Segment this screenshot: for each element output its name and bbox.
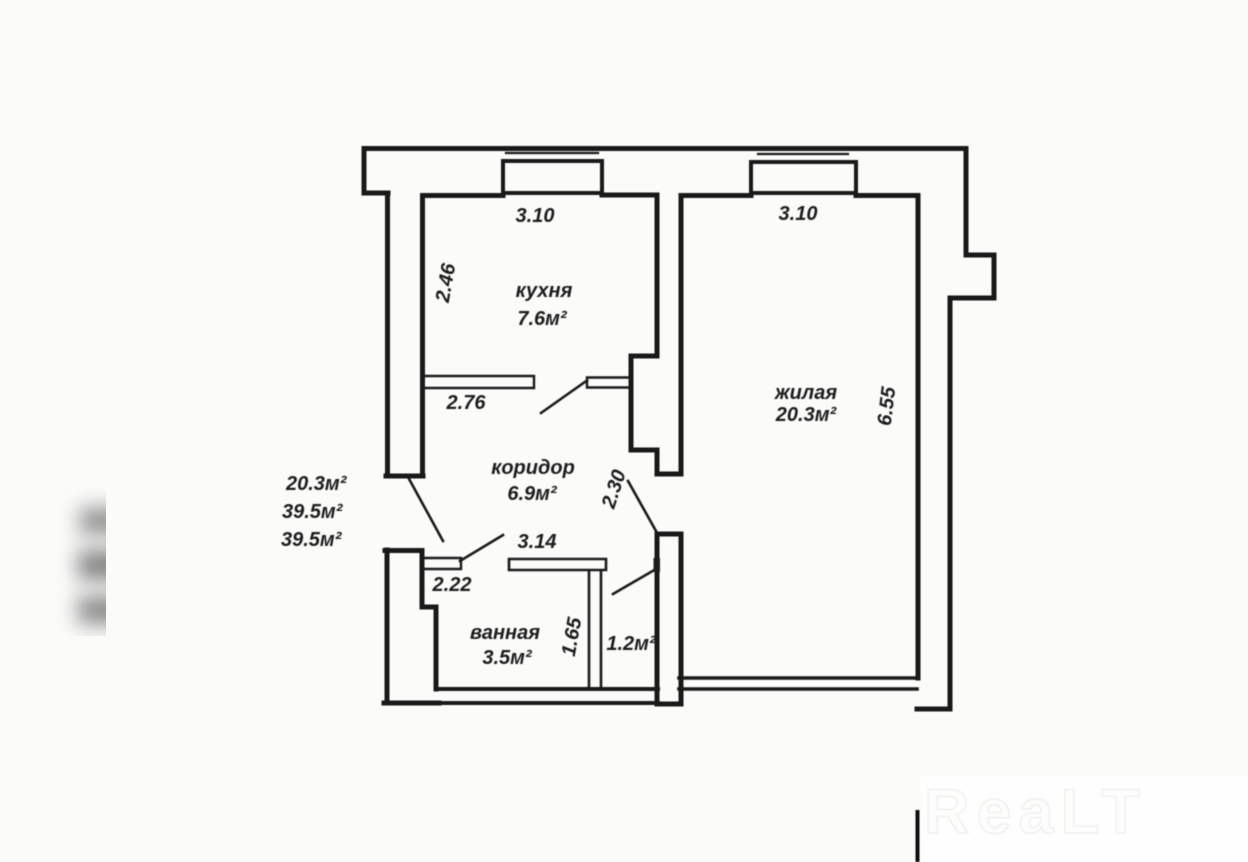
svg-text:2.30: 2.30 (598, 467, 631, 512)
svg-text:2.76: 2.76 (446, 392, 487, 414)
svg-text:3.14: 3.14 (518, 531, 557, 553)
svg-text:20.3м²: 20.3м² (775, 404, 838, 426)
svg-text:3.5м²: 3.5м² (482, 647, 533, 669)
svg-text:коридор: коридор (491, 457, 575, 479)
svg-text:7.6м²: 7.6м² (517, 308, 568, 330)
svg-text:39.5м²: 39.5м² (281, 529, 343, 551)
svg-text:20.3м²: 20.3м² (285, 473, 348, 495)
svg-text:2.22: 2.22 (432, 574, 472, 596)
svg-text:2.46: 2.46 (432, 261, 461, 305)
svg-text:кухня: кухня (516, 280, 573, 302)
svg-text:1.65: 1.65 (558, 615, 587, 658)
svg-text:1.2м²: 1.2м² (606, 633, 657, 655)
svg-text:3.10: 3.10 (516, 205, 555, 227)
svg-text:6.55: 6.55 (874, 385, 901, 427)
svg-text:ванная: ванная (470, 622, 540, 644)
svg-text:39.5м²: 39.5м² (282, 501, 344, 523)
svg-text:ReaLT: ReaLT (924, 777, 1147, 847)
svg-text:6.9м²: 6.9м² (507, 483, 558, 505)
svg-text:3.10: 3.10 (779, 203, 818, 225)
svg-text:жилая: жилая (774, 382, 838, 404)
